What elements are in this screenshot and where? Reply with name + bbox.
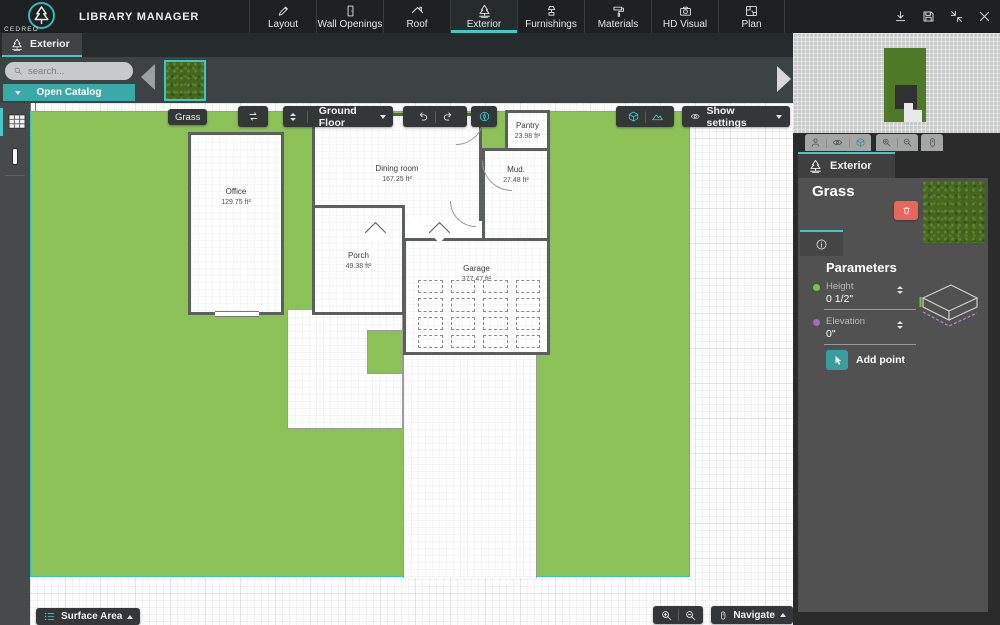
catalog-tab-row: Exterior — [0, 33, 793, 57]
top-bar: CEDREO LIBRARY MANAGER Layout Wall Openi… — [0, 0, 1000, 33]
furniture-icon — [544, 4, 559, 18]
tree-icon — [30, 4, 53, 27]
logo-text: CEDREO — [4, 26, 39, 33]
zoom-out-icon[interactable] — [684, 609, 697, 622]
room-pantry[interactable]: Pantry 23.98 ft² — [505, 110, 550, 151]
repeat-button[interactable] — [238, 106, 268, 127]
preview-view-buttons — [805, 134, 871, 151]
parameters-title: Parameters — [826, 260, 897, 275]
eye-icon[interactable] — [832, 137, 843, 148]
selection-tooltip: Grass — [168, 109, 207, 125]
elevation-color-dot — [813, 319, 820, 326]
tab-wall-openings[interactable]: Wall Openings — [316, 0, 383, 33]
height-label: Height — [826, 281, 853, 292]
zoom-in-icon[interactable] — [881, 137, 892, 148]
cursor-icon — [831, 354, 844, 367]
tree-icon — [477, 4, 492, 18]
undo-icon[interactable] — [417, 110, 430, 123]
tab-exterior[interactable]: Exterior — [450, 0, 517, 33]
roof-icon — [410, 4, 425, 18]
window-actions — [893, 0, 992, 33]
tree-icon — [808, 159, 823, 173]
pencil-icon — [276, 4, 291, 18]
cedreo-logo — [28, 2, 55, 29]
download-icon[interactable] — [893, 9, 908, 24]
plan-icon — [744, 4, 759, 18]
tab-hd-visual[interactable]: HD Visual — [651, 0, 718, 33]
show-settings-button[interactable]: Show settings — [682, 106, 790, 127]
cedreo-app: { "topbar": { "logo_text": "CEDREO", "ti… — [0, 0, 1000, 625]
catalog-next-arrow[interactable] — [777, 66, 791, 92]
surface-tool-button[interactable] — [0, 108, 30, 136]
chevron-down-icon — [15, 91, 21, 95]
driveway-cutout — [403, 352, 537, 578]
height-stepper[interactable] — [897, 286, 903, 294]
room-office[interactable]: Office 129.75 ft² — [188, 132, 284, 315]
search-icon — [13, 66, 23, 76]
info-tab[interactable] — [800, 230, 843, 256]
add-point-button[interactable] — [826, 350, 848, 370]
zoom-out-icon[interactable] — [902, 137, 913, 148]
panel-body: Grass Parameters Height 0 1/2" Elevation… — [798, 178, 988, 612]
tab-roof[interactable]: Roof — [383, 0, 450, 33]
floor-stepper[interactable] — [290, 113, 296, 121]
zoom-in-icon[interactable] — [660, 609, 673, 622]
room-porch[interactable]: Porch 49.38 ft² — [312, 205, 405, 315]
left-toolbar — [0, 103, 30, 625]
door-icon — [343, 4, 358, 18]
main-tabs: Layout Wall Openings Roof Exterior Furni… — [249, 0, 785, 33]
wall-icon — [12, 148, 18, 165]
preview-pan-button[interactable] — [921, 134, 943, 151]
delete-button[interactable] — [894, 201, 918, 220]
search-box[interactable] — [5, 62, 133, 80]
eye-icon — [690, 110, 701, 123]
tab-materials[interactable]: Materials — [584, 0, 651, 33]
redo-icon[interactable] — [441, 110, 454, 123]
panel-tab-exterior[interactable]: Exterior — [798, 152, 895, 178]
3d-preview[interactable] — [793, 33, 1000, 133]
page-title: LIBRARY MANAGER — [79, 11, 199, 23]
selected-item-title: Grass — [812, 183, 855, 200]
elevation-value[interactable]: 0" — [826, 328, 836, 340]
collapse-icon[interactable] — [949, 9, 964, 24]
paint-roller-icon — [611, 4, 626, 18]
zoom-controls — [653, 606, 703, 624]
compass-button[interactable] — [471, 106, 497, 127]
add-point-label: Add point — [856, 354, 905, 366]
trash-icon — [901, 205, 912, 216]
catalog-prev-arrow[interactable] — [141, 64, 155, 90]
toolbar-divider — [5, 175, 25, 176]
tab-furnishings[interactable]: Furnishings — [517, 0, 584, 33]
tab-plan[interactable]: Plan — [718, 0, 785, 33]
window-symbol — [215, 311, 259, 317]
preview-grass-plot — [884, 48, 926, 122]
repeat-icon — [247, 110, 260, 123]
material-thumbnail[interactable] — [923, 181, 985, 243]
wall-tool-button[interactable] — [0, 143, 30, 169]
info-icon — [815, 238, 828, 251]
height-color-dot — [813, 284, 820, 291]
chevron-down-icon — [776, 115, 782, 119]
elevation-stepper[interactable] — [897, 321, 903, 329]
garage-floor-hatch — [418, 280, 540, 348]
view-mode-group — [616, 106, 674, 127]
grid-icon — [8, 114, 26, 130]
tree-icon — [10, 38, 24, 51]
catalog-tab-exterior[interactable]: Exterior — [2, 33, 82, 57]
search-input[interactable] — [28, 66, 120, 77]
height-value[interactable]: 0 1/2" — [826, 293, 853, 305]
cube-icon[interactable] — [855, 137, 866, 148]
catalog-strip: Open Catalog — [0, 57, 793, 103]
chevron-down-icon — [380, 115, 386, 119]
properties-panel: Exterior Grass Parameters Height 0 1/2" … — [793, 33, 1000, 625]
elevation-label: Elevation — [826, 316, 865, 327]
terrain-icon[interactable] — [651, 110, 664, 123]
preview-zoom-buttons — [876, 134, 918, 151]
hand-icon — [927, 137, 938, 148]
navigate-dropdown[interactable]: Navigate — [711, 606, 793, 624]
chevron-up-icon — [127, 615, 133, 619]
mouse-icon — [718, 609, 728, 622]
cube-icon[interactable] — [627, 110, 640, 123]
compass-icon — [478, 110, 491, 123]
chevron-up-icon — [780, 613, 786, 617]
slab-illustration — [911, 276, 985, 342]
save-icon[interactable] — [921, 9, 936, 24]
plan-canvas[interactable]: Dining room 167.25 ft² Office 129.75 ft²… — [30, 103, 793, 625]
close-icon[interactable] — [977, 9, 992, 24]
grass-swatch-selected[interactable] — [164, 60, 206, 101]
person-icon[interactable] — [810, 137, 821, 148]
list-icon — [43, 610, 56, 623]
camera-icon — [678, 4, 693, 18]
tab-layout[interactable]: Layout — [249, 0, 316, 33]
open-catalog-button[interactable]: Open Catalog — [3, 84, 135, 101]
grass-notch — [367, 330, 403, 374]
surface-area-dropdown[interactable]: Surface Area — [36, 608, 140, 625]
floor-selector[interactable]: Ground Floor — [283, 106, 393, 127]
undo-redo-group — [403, 106, 467, 127]
